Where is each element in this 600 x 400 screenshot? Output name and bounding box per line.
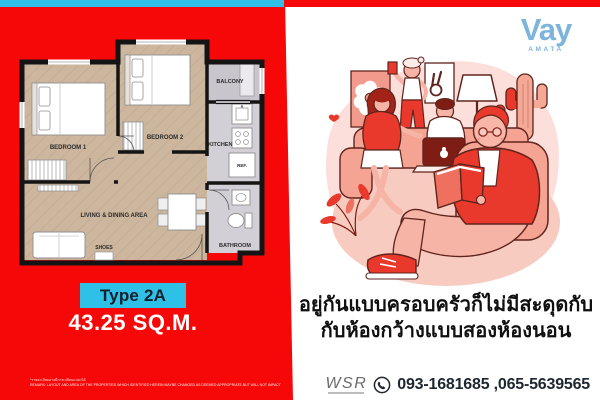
label-shoes: SHOES [95, 245, 113, 251]
label-fridge: REF. [237, 163, 247, 168]
family-illustration [304, 54, 588, 292]
area-label: 43.25 SQ.M. [28, 310, 238, 336]
headline: อยู่กันแบบครอบครัวก็ไม่มีสะดุดกับ กับห้อ… [294, 292, 598, 344]
label-living: LIVING & DINING AREA [80, 213, 148, 219]
type-label: Type 2A [100, 286, 166, 306]
ad-poster: BEDROOM 1 BEDROOM 2 LIVING & DINING AREA… [0, 0, 600, 400]
phone-icon [373, 376, 391, 394]
brand-logo: Vay AMATA [514, 14, 578, 53]
label-bedroom1: BEDROOM 1 [50, 145, 87, 151]
brand-subname: AMATA [514, 46, 578, 53]
type-badge: Type 2A [80, 283, 186, 308]
bed-2 [125, 55, 190, 105]
label-bedroom2: BEDROOM 2 [147, 135, 184, 141]
sofa-plan [33, 232, 85, 258]
bath-sink [232, 190, 250, 205]
tv-console [38, 185, 78, 191]
kitchen-sink [232, 104, 252, 124]
shoes-mat [95, 252, 113, 260]
toilet [228, 213, 252, 228]
peace-frame [425, 63, 454, 103]
wardrobe-1 [28, 160, 66, 180]
disclaimer-english: REMARK: LAYOUT AND AREA OF THE PROPERTIE… [30, 383, 282, 388]
label-balcony: BALCONY [216, 79, 244, 85]
phone-numbers: 093-1681685 ,065-5639565 [397, 376, 590, 394]
floor-plan: BEDROOM 1 BEDROOM 2 LIVING & DINING AREA… [18, 36, 268, 266]
bed-1 [32, 83, 105, 135]
label-kitchen: KITCHEN [208, 142, 232, 148]
stove [232, 128, 252, 148]
top-strip-cyan [0, 0, 284, 7]
label-bathroom: BATHROOM [219, 243, 251, 249]
headline-line2: กับห้องกว้างแบบสองห้องนอน [294, 318, 598, 344]
disclaimer: *รายละเอียดอาจมีการเปลี่ยนแปลงได้ REMARK… [30, 378, 282, 388]
wsr-logo-text: WSR [325, 376, 367, 391]
wsr-logo: WSR [325, 376, 367, 394]
wsr-logo-underline [328, 392, 364, 394]
headline-line1: อยู่กันแบบครอบครัวก็ไม่มีสะดุดกับ [294, 292, 598, 318]
brand-name: Vay [514, 14, 578, 46]
contact-bar: WSR 093-1681685 ,065-5639565 [325, 372, 590, 398]
